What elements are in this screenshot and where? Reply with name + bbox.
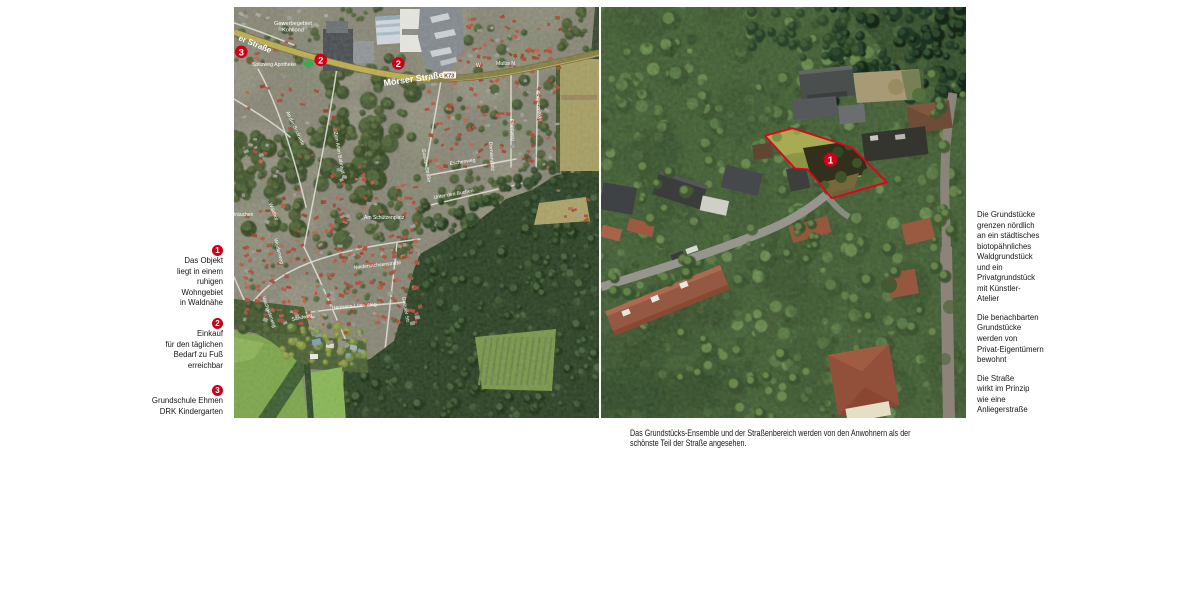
- svg-text:3: 3: [239, 47, 244, 58]
- svg-text:1: 1: [828, 155, 834, 166]
- svg-text:2: 2: [396, 59, 401, 70]
- svg-text:2: 2: [318, 55, 323, 66]
